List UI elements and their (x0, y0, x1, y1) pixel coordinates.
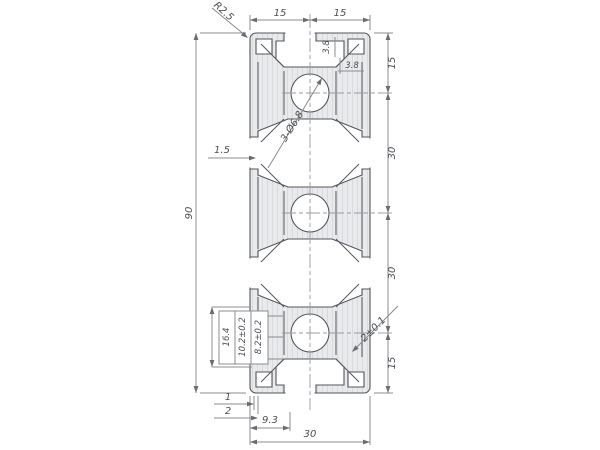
dim-bottom-2: 2 (225, 407, 231, 417)
dim-right-30-lower: 30 (388, 267, 398, 280)
dim-boss-horizontal: 3.8 (345, 62, 359, 71)
dim-slot-mid: 10.2±0.2 (239, 317, 248, 357)
technical-drawing-canvas: 15 15 R2.5 3.8 3.8 15 30 30 15 90 1.5 3-… (0, 0, 600, 450)
dim-overall-length: 90 (185, 207, 195, 220)
dim-wall-thickness: 1.5 (214, 146, 230, 156)
dim-right-15-top: 15 (388, 57, 398, 70)
extrusion-profile-drawing (0, 0, 600, 450)
dim-top-left: 15 (274, 9, 287, 19)
dim-boss-vertical: 3.8 (323, 40, 332, 54)
dim-bottom-1: 1 (225, 393, 231, 403)
dim-bottom-9-3: 9.3 (262, 416, 278, 426)
dim-top-right: 15 (334, 9, 347, 19)
dim-right-15-bottom: 15 (388, 357, 398, 370)
dim-overall-width: 30 (304, 430, 317, 440)
dim-slot-width: 16.4 (223, 328, 232, 347)
dim-slot-opening: 8.2±0.2 (255, 320, 264, 354)
dim-right-30-upper: 30 (388, 147, 398, 160)
